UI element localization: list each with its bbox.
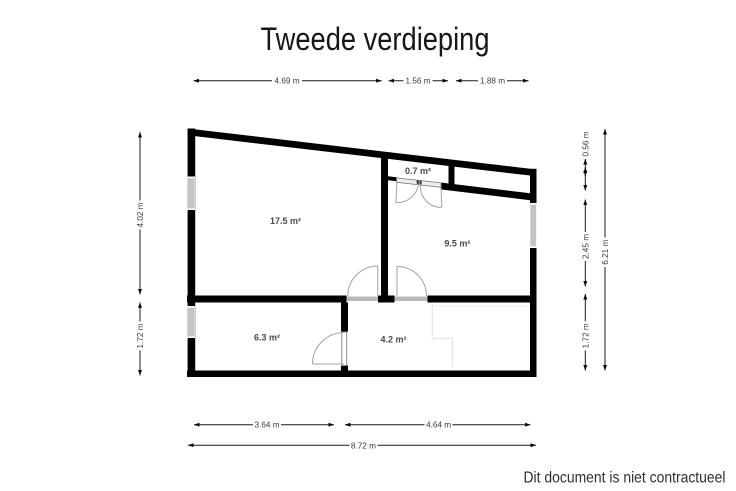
svg-text:9.5 m²: 9.5 m² (444, 238, 470, 248)
svg-text:1.72 m: 1.72 m (136, 323, 145, 348)
svg-text:Dit document is niet contractu: Dit document is niet contractueel (524, 470, 726, 487)
svg-text:4.64 m: 4.64 m (426, 421, 451, 430)
svg-text:8.72 m: 8.72 m (351, 442, 376, 451)
svg-text:17.5 m²: 17.5 m² (270, 216, 301, 226)
svg-text:6.3 m²: 6.3 m² (254, 332, 280, 342)
svg-text:1.88 m: 1.88 m (480, 77, 505, 86)
svg-text:4.2 m²: 4.2 m² (380, 335, 406, 345)
svg-text:6.21 m: 6.21 m (601, 240, 610, 265)
svg-text:0.56 m: 0.56 m (581, 131, 590, 156)
svg-text:1.56 m: 1.56 m (405, 77, 430, 86)
svg-text:0.7 m²: 0.7 m² (405, 166, 431, 176)
svg-text:4.69 m: 4.69 m (274, 77, 299, 86)
svg-text:1.72 m: 1.72 m (581, 323, 590, 348)
svg-text:3.64 m: 3.64 m (254, 421, 279, 430)
svg-text:4.02 m: 4.02 m (136, 202, 145, 227)
svg-text:Tweede verdieping: Tweede verdieping (261, 21, 490, 57)
svg-text:2.45 m: 2.45 m (581, 234, 590, 259)
